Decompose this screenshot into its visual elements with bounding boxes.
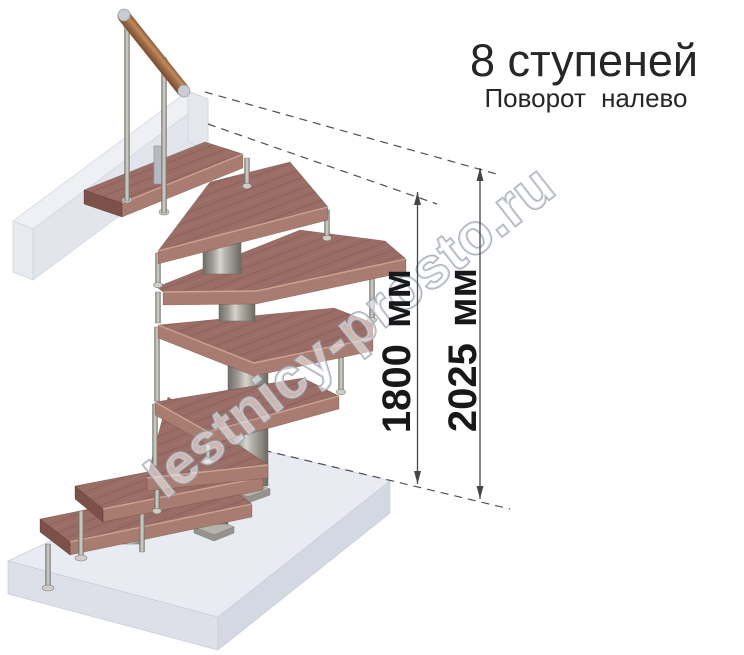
page-subtitle: Поворот налево: [484, 83, 687, 113]
beam-left-end: [13, 221, 33, 280]
rod-joint: [337, 389, 346, 395]
rod-joint: [243, 183, 252, 189]
beam-right-end: [188, 91, 208, 150]
handrail: [124, 16, 183, 90]
support-rod: [79, 511, 84, 557]
baluster: [125, 25, 130, 201]
dimension-1800: 1800 мм: [375, 192, 421, 484]
rod-joint: [323, 235, 332, 241]
dimension-1800-label: 1800 мм: [375, 269, 419, 433]
page-title: 8 ступеней: [470, 35, 698, 86]
handrail-end-cap: [118, 9, 130, 21]
dimension-2025-label: 2025 мм: [441, 268, 485, 432]
support-rod: [245, 158, 250, 186]
handrail-end-cap: [178, 85, 190, 97]
staircase-diagram-svg: lestnicy-prosto.ru 1800 мм 2025 мм 8 сту…: [0, 0, 744, 655]
baluster: [162, 58, 167, 213]
rod-foot: [42, 585, 54, 591]
support-rod: [156, 292, 161, 323]
rod-joint: [153, 508, 162, 514]
support-rod: [46, 544, 51, 586]
staircase-diagram-image: lestnicy-prosto.ru 1800 мм 2025 мм 8 сту…: [0, 0, 744, 655]
rod-joint: [154, 282, 163, 288]
rod-foot: [75, 555, 87, 561]
